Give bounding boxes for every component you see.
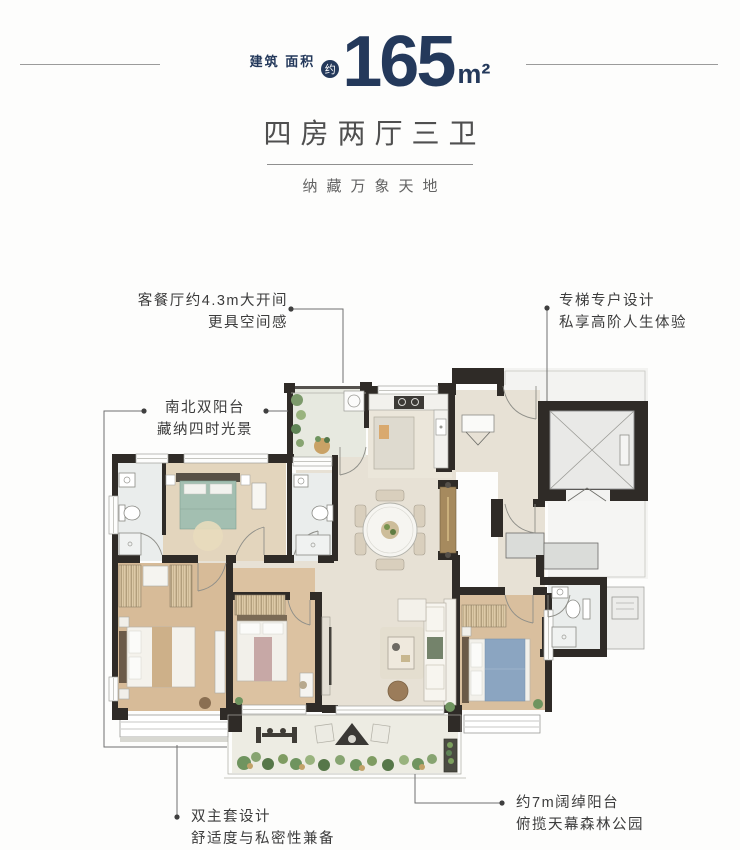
area-label: 建筑 面积 (250, 54, 316, 70)
annotation-line: 更具空间感 (138, 312, 288, 334)
area-unit: m² (457, 59, 490, 90)
approx-badge-icon: 约 (321, 60, 339, 78)
annotation-line: 专梯专户设计 (559, 290, 687, 312)
annotation-south-balcony: 约7m阔绰阳台 俯揽天幕森林公园 (516, 792, 644, 836)
wardrobe (170, 565, 192, 607)
annotation-elevator: 专梯专户设计 私享高阶人生体验 (559, 290, 687, 334)
armchair (388, 681, 408, 701)
floor-plan-section: 客餐厅约4.3m大开间 更具空间感 专梯专户设计 私享高阶人生体验 南北双阳台 … (0, 287, 740, 847)
annotation-line: 约7m阔绰阳台 (516, 792, 644, 814)
annotation-line: 俯揽天幕森林公园 (516, 814, 644, 836)
washer-icon (344, 391, 364, 411)
page-title: 四房两厅三卫 (0, 112, 740, 152)
area-label-line1: 建筑 (250, 54, 280, 69)
annotation-line: 南北双阳台 (120, 397, 290, 419)
annotation-line: 私享高阶人生体验 (559, 312, 687, 334)
page-subtitle: 纳藏万象天地 (0, 175, 740, 196)
plant-icon (445, 702, 455, 712)
title-block: 四房两厅三卫 纳藏万象天地 (0, 112, 740, 196)
title-divider (267, 164, 473, 165)
tv-console (322, 617, 330, 695)
kitchen-set (369, 394, 448, 469)
tv-icon (329, 627, 332, 685)
floor-plan (0, 287, 740, 847)
annotation-line: 双主套设计 (191, 806, 335, 828)
dresser (462, 605, 506, 627)
area-value: 165 (342, 26, 453, 98)
annotation-dual-balcony: 南北双阳台 藏纳四时光景 (120, 397, 290, 441)
wardrobe (235, 595, 285, 615)
elevator (550, 411, 634, 501)
coffee-table (388, 637, 414, 669)
annotation-line: 藏纳四时光景 (120, 419, 290, 441)
annotation-living-dining: 客餐厅约4.3m大开间 更具空间感 (138, 290, 288, 334)
wardrobe (119, 565, 141, 607)
annotation-dual-master: 双主套设计 舒适度与私密性兼备 (191, 806, 335, 850)
annotation-line: 客餐厅约4.3m大开间 (138, 290, 288, 312)
header: 建筑 面积 约 165 m² (0, 16, 740, 108)
area-label-line2: 面积 (285, 54, 315, 69)
